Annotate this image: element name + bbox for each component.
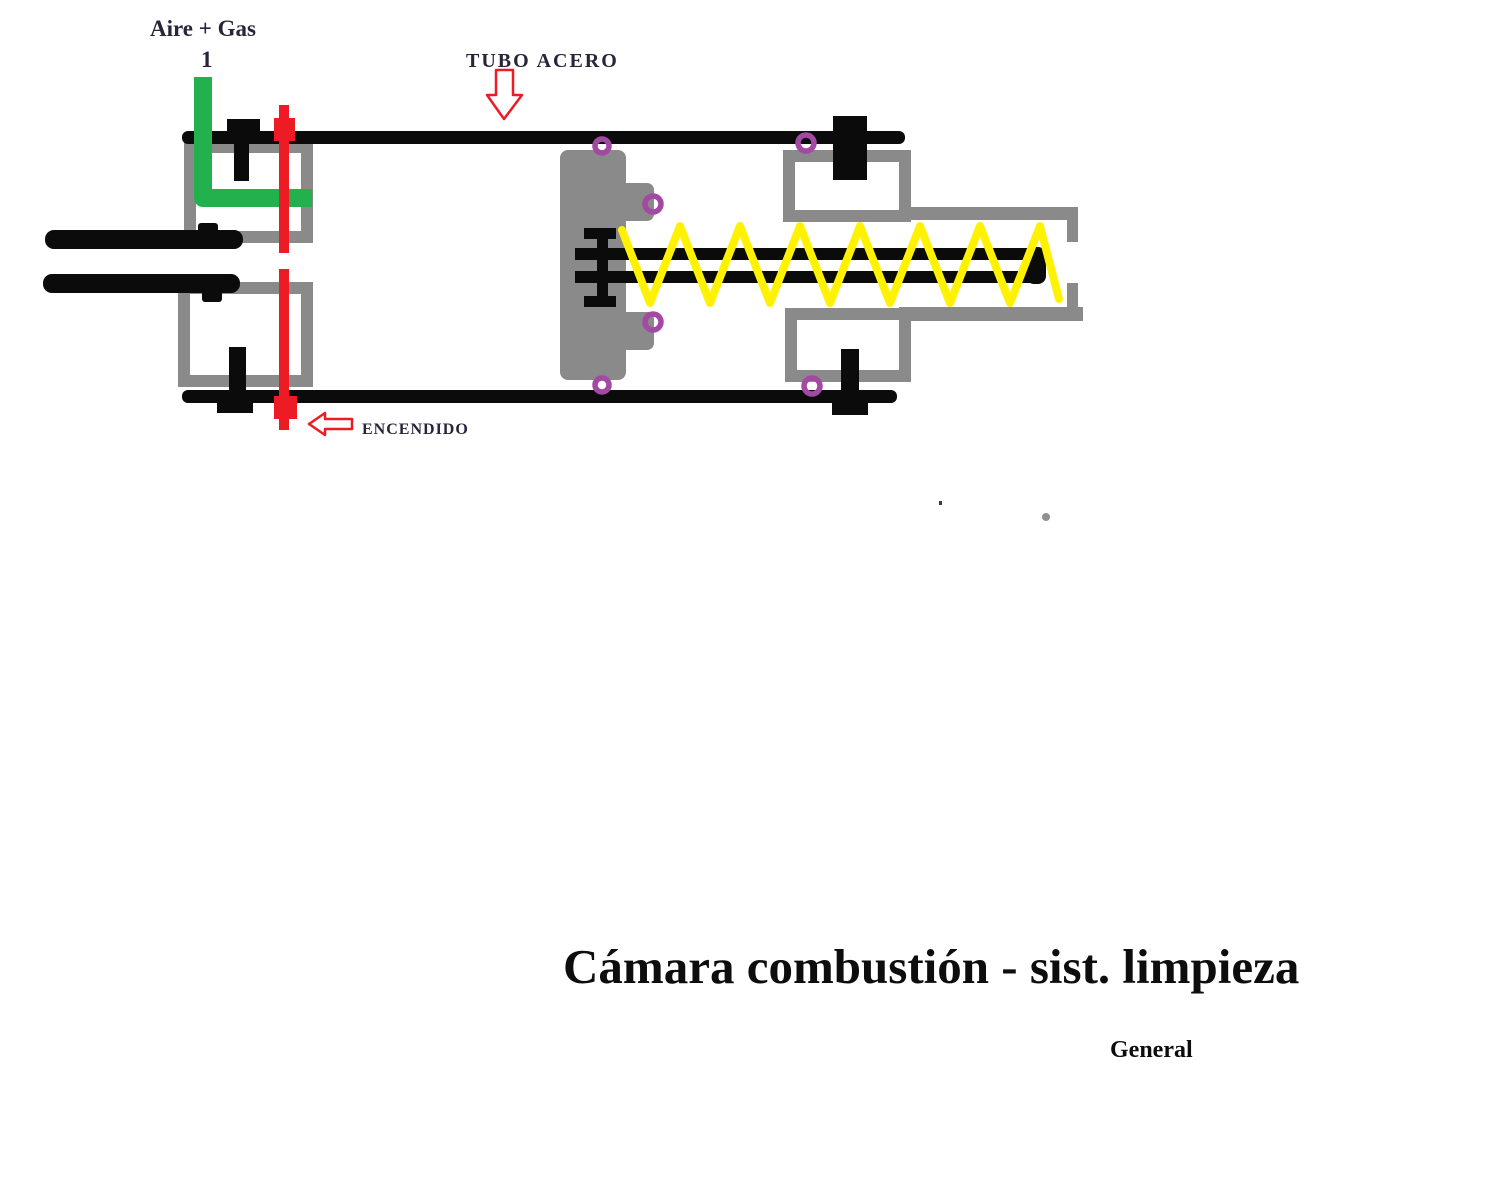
piston-ibeam-bottom-cap <box>584 296 616 307</box>
spark-terminal-bottom <box>274 396 297 419</box>
spark-terminal-top <box>274 118 295 141</box>
outlet-tube-end-lip-top <box>1067 214 1078 242</box>
ring-right-bottom <box>804 378 820 394</box>
outlet-tube-end-lip-bottom <box>1067 283 1078 312</box>
bolt-bottom-left-cap <box>217 396 253 413</box>
bolt-top-left-cap <box>227 119 260 139</box>
outlet-tube-top-wall <box>899 207 1078 220</box>
left-arrow-icon <box>309 413 352 435</box>
ignition-label: ENCENDIDO <box>362 421 469 438</box>
air-gas-label: Aire + Gas <box>150 16 256 41</box>
gray-metal-parts <box>184 147 1083 521</box>
cleaning-spring <box>622 226 1059 303</box>
bolt-bottom-right-stem <box>841 349 859 398</box>
down-arrow-icon <box>487 70 522 119</box>
page-subtitle: General <box>1110 1037 1193 1063</box>
steel-tube-label: TUBO ACERO <box>466 50 619 72</box>
combustion-chamber-diagram: Aire + Gas 1 TUBO ACERO ENCENDIDO Cámara… <box>0 0 1497 1194</box>
inlet-pipe-upper-lug <box>198 223 218 234</box>
inlet-pipe-lower-lug <box>202 290 222 302</box>
piston-lug-top <box>620 183 654 221</box>
stray-black-dot <box>939 501 942 505</box>
outlet-tube-bottom-wall <box>899 307 1083 321</box>
bolt-bottom-right-cap <box>832 396 868 415</box>
bolt-top-right <box>833 116 867 180</box>
stray-gray-dot <box>1042 513 1050 521</box>
piston-ibeam-web <box>597 230 608 307</box>
bolt-bottom-left-stem <box>229 347 246 398</box>
ring-piston-top <box>595 139 609 153</box>
inlet-number-label: 1 <box>201 47 213 72</box>
paint-canvas: Aire + Gas 1 TUBO ACERO ENCENDIDO Cámara… <box>0 0 1497 1194</box>
piston-body <box>560 150 626 380</box>
ring-piston-bottom <box>595 378 609 392</box>
bolt-top-left-stem <box>234 137 249 181</box>
page-title: Cámara combustión - sist. limpieza <box>563 939 1299 994</box>
